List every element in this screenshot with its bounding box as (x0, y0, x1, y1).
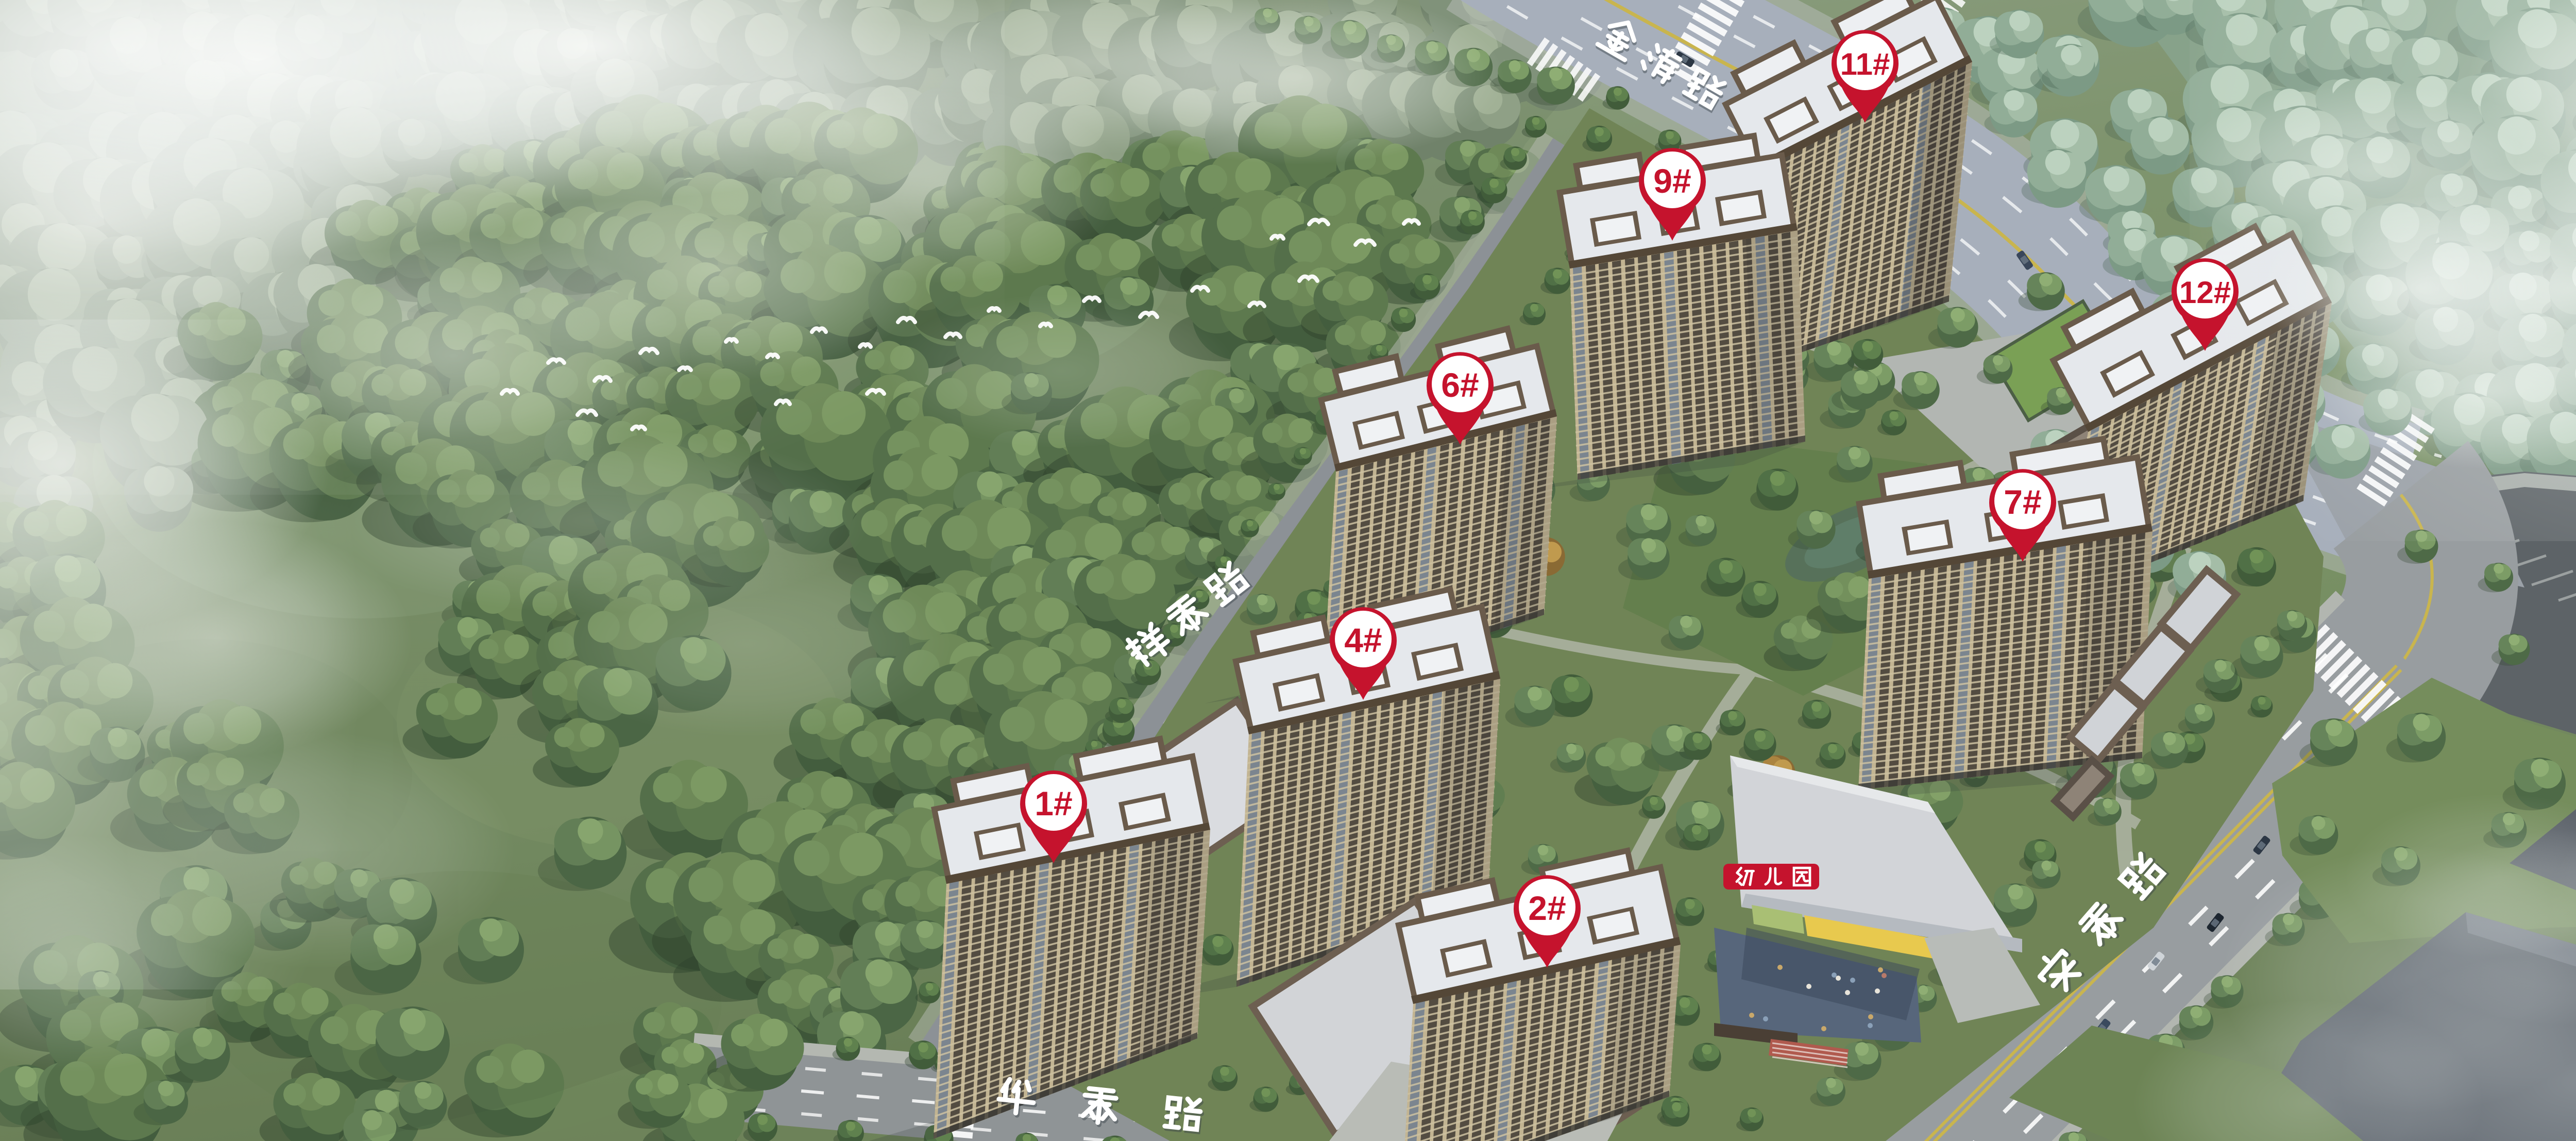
svg-text:9#: 9# (1653, 162, 1691, 200)
svg-text:2#: 2# (1528, 889, 1566, 927)
svg-text:4#: 4# (1344, 621, 1382, 659)
svg-text:12#: 12# (2179, 275, 2231, 310)
svg-text:6#: 6# (1441, 366, 1479, 404)
svg-text:7#: 7# (2004, 483, 2041, 521)
svg-text:1#: 1# (1035, 784, 1072, 823)
svg-text:11#: 11# (1840, 47, 1890, 81)
